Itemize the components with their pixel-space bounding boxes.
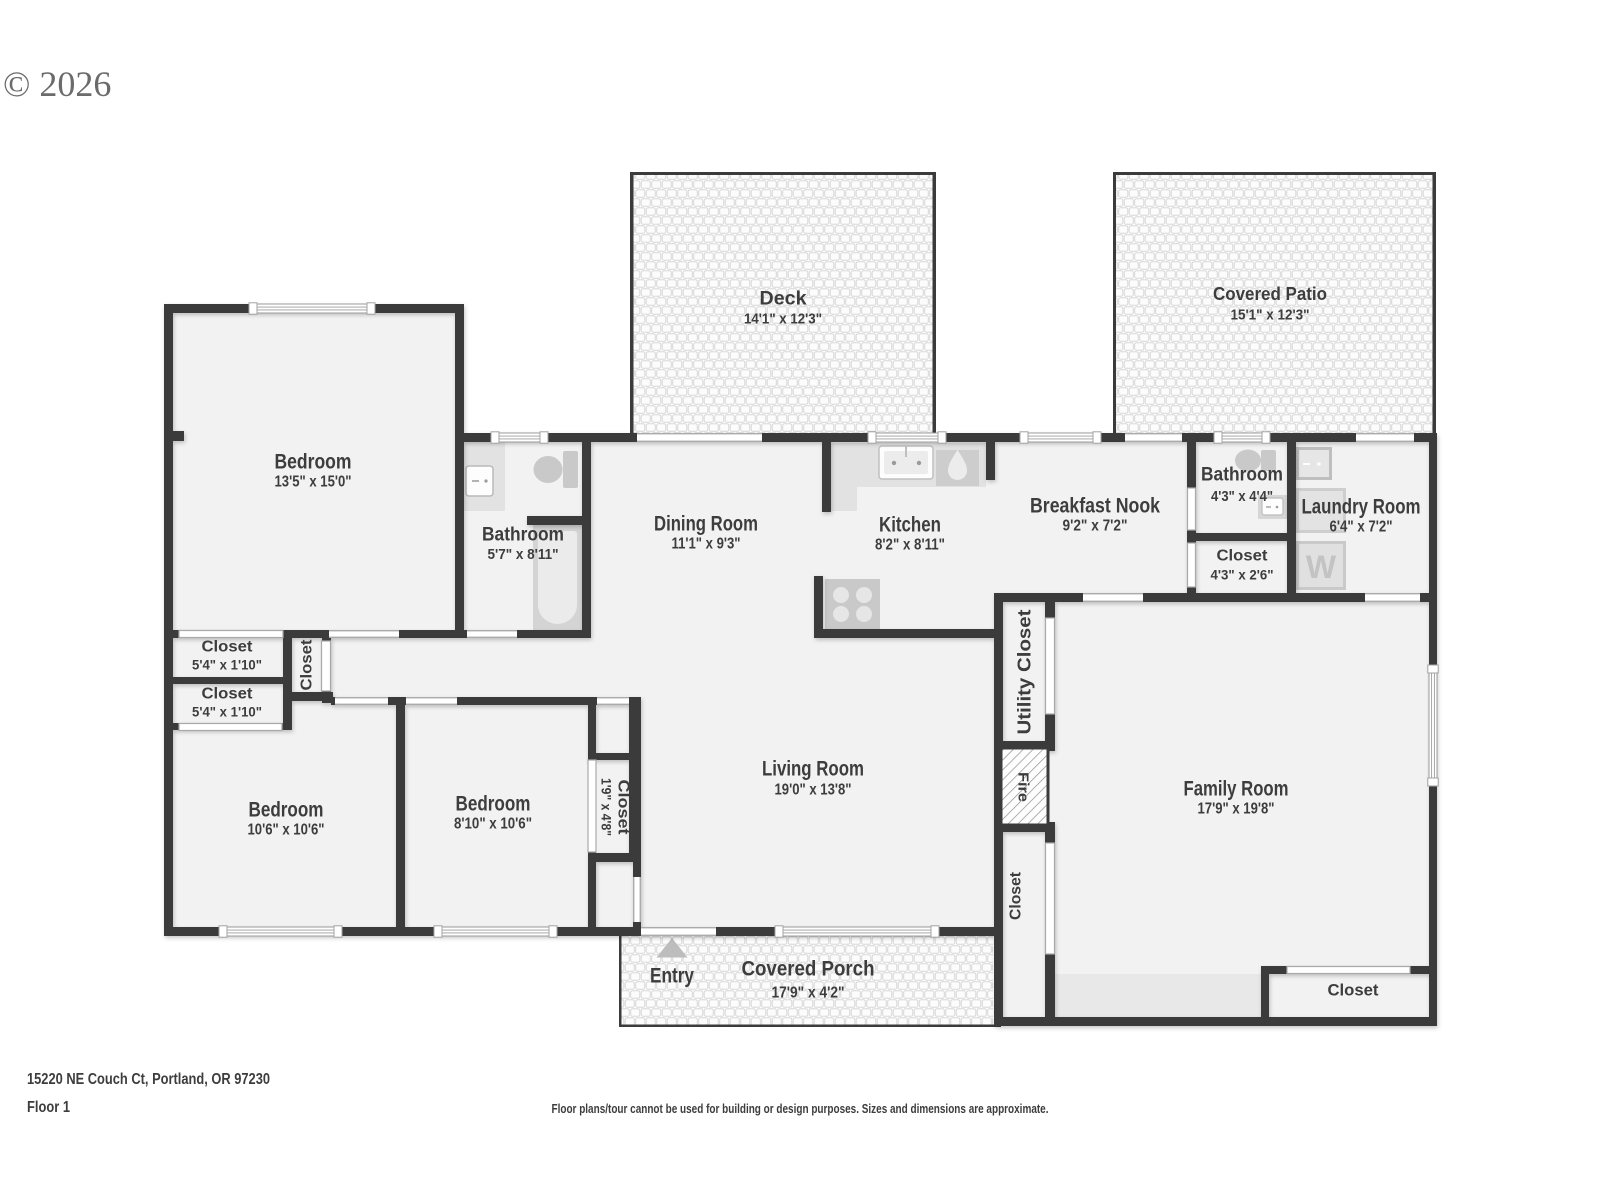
svg-text:Fire: Fire <box>1015 772 1032 802</box>
svg-text:Closet: Closet <box>202 639 254 656</box>
svg-text:Closet: Closet <box>1008 871 1025 920</box>
svg-text:4'3" x 4'4": 4'3" x 4'4" <box>1211 489 1273 505</box>
svg-text:Floor 1: Floor 1 <box>27 1099 70 1116</box>
svg-text:15'1" x 12'3": 15'1" x 12'3" <box>1231 307 1310 324</box>
svg-text:Covered Patio: Covered Patio <box>1213 284 1327 304</box>
svg-text:Dining Room: Dining Room <box>654 513 758 536</box>
svg-text:8'2" x 8'11": 8'2" x 8'11" <box>875 537 945 554</box>
svg-text:15220 NE Couch Ct, Portland, O: 15220 NE Couch Ct, Portland, OR 97230 <box>27 1071 270 1088</box>
svg-text:Bedroom: Bedroom <box>456 793 531 816</box>
svg-text:5'7" x 8'11": 5'7" x 8'11" <box>488 547 559 563</box>
svg-text:Bathroom: Bathroom <box>482 525 564 546</box>
svg-text:Deck: Deck <box>760 289 807 310</box>
svg-text:5'4" x 1'10": 5'4" x 1'10" <box>192 705 262 720</box>
svg-text:Family Room: Family Room <box>1184 778 1289 801</box>
svg-text:8'10" x 10'6": 8'10" x 10'6" <box>454 816 532 833</box>
svg-text:4'3" x 2'6": 4'3" x 2'6" <box>1211 568 1274 583</box>
svg-text:19'0" x 13'8": 19'0" x 13'8" <box>775 782 852 799</box>
svg-text:14'1" x 12'3": 14'1" x 12'3" <box>744 311 822 328</box>
svg-text:Closet: Closet <box>299 639 316 691</box>
svg-text:Bedroom: Bedroom <box>275 451 352 474</box>
svg-text:Bathroom: Bathroom <box>1201 465 1283 486</box>
svg-text:11'1" x 9'3": 11'1" x 9'3" <box>672 536 741 553</box>
svg-text:Closet: Closet <box>1328 981 1379 1000</box>
svg-text:Covered Porch: Covered Porch <box>742 958 875 981</box>
svg-text:Utility Closet: Utility Closet <box>1014 610 1035 735</box>
svg-text:6'4" x 7'2": 6'4" x 7'2" <box>1330 519 1393 536</box>
svg-text:Closet: Closet <box>1217 548 1269 565</box>
svg-text:Closet: Closet <box>202 686 254 703</box>
svg-text:Laundry Room: Laundry Room <box>1302 496 1421 519</box>
svg-text:10'6" x 10'6": 10'6" x 10'6" <box>248 822 325 839</box>
svg-text:Floor plans/tour cannot be use: Floor plans/tour cannot be used for buil… <box>552 1102 1049 1116</box>
svg-text:17'9" x 19'8": 17'9" x 19'8" <box>1198 801 1275 818</box>
svg-text:Entry: Entry <box>650 965 694 988</box>
svg-text:Closet: Closet <box>615 780 632 836</box>
svg-text:Breakfast Nook: Breakfast Nook <box>1030 495 1160 518</box>
svg-text:5'4" x 1'10": 5'4" x 1'10" <box>192 658 262 673</box>
svg-text:© 2026: © 2026 <box>3 64 111 104</box>
svg-text:W: W <box>1306 549 1337 585</box>
svg-text:17'9" x 4'2": 17'9" x 4'2" <box>772 985 845 1002</box>
svg-text:Living Room: Living Room <box>762 758 864 781</box>
svg-text:1'9" x 4'8": 1'9" x 4'8" <box>599 778 614 836</box>
svg-text:Bedroom: Bedroom <box>249 799 324 822</box>
svg-text:13'5" x 15'0": 13'5" x 15'0" <box>275 474 352 491</box>
svg-text:Kitchen: Kitchen <box>879 514 941 537</box>
svg-text:9'2" x 7'2": 9'2" x 7'2" <box>1063 518 1128 535</box>
